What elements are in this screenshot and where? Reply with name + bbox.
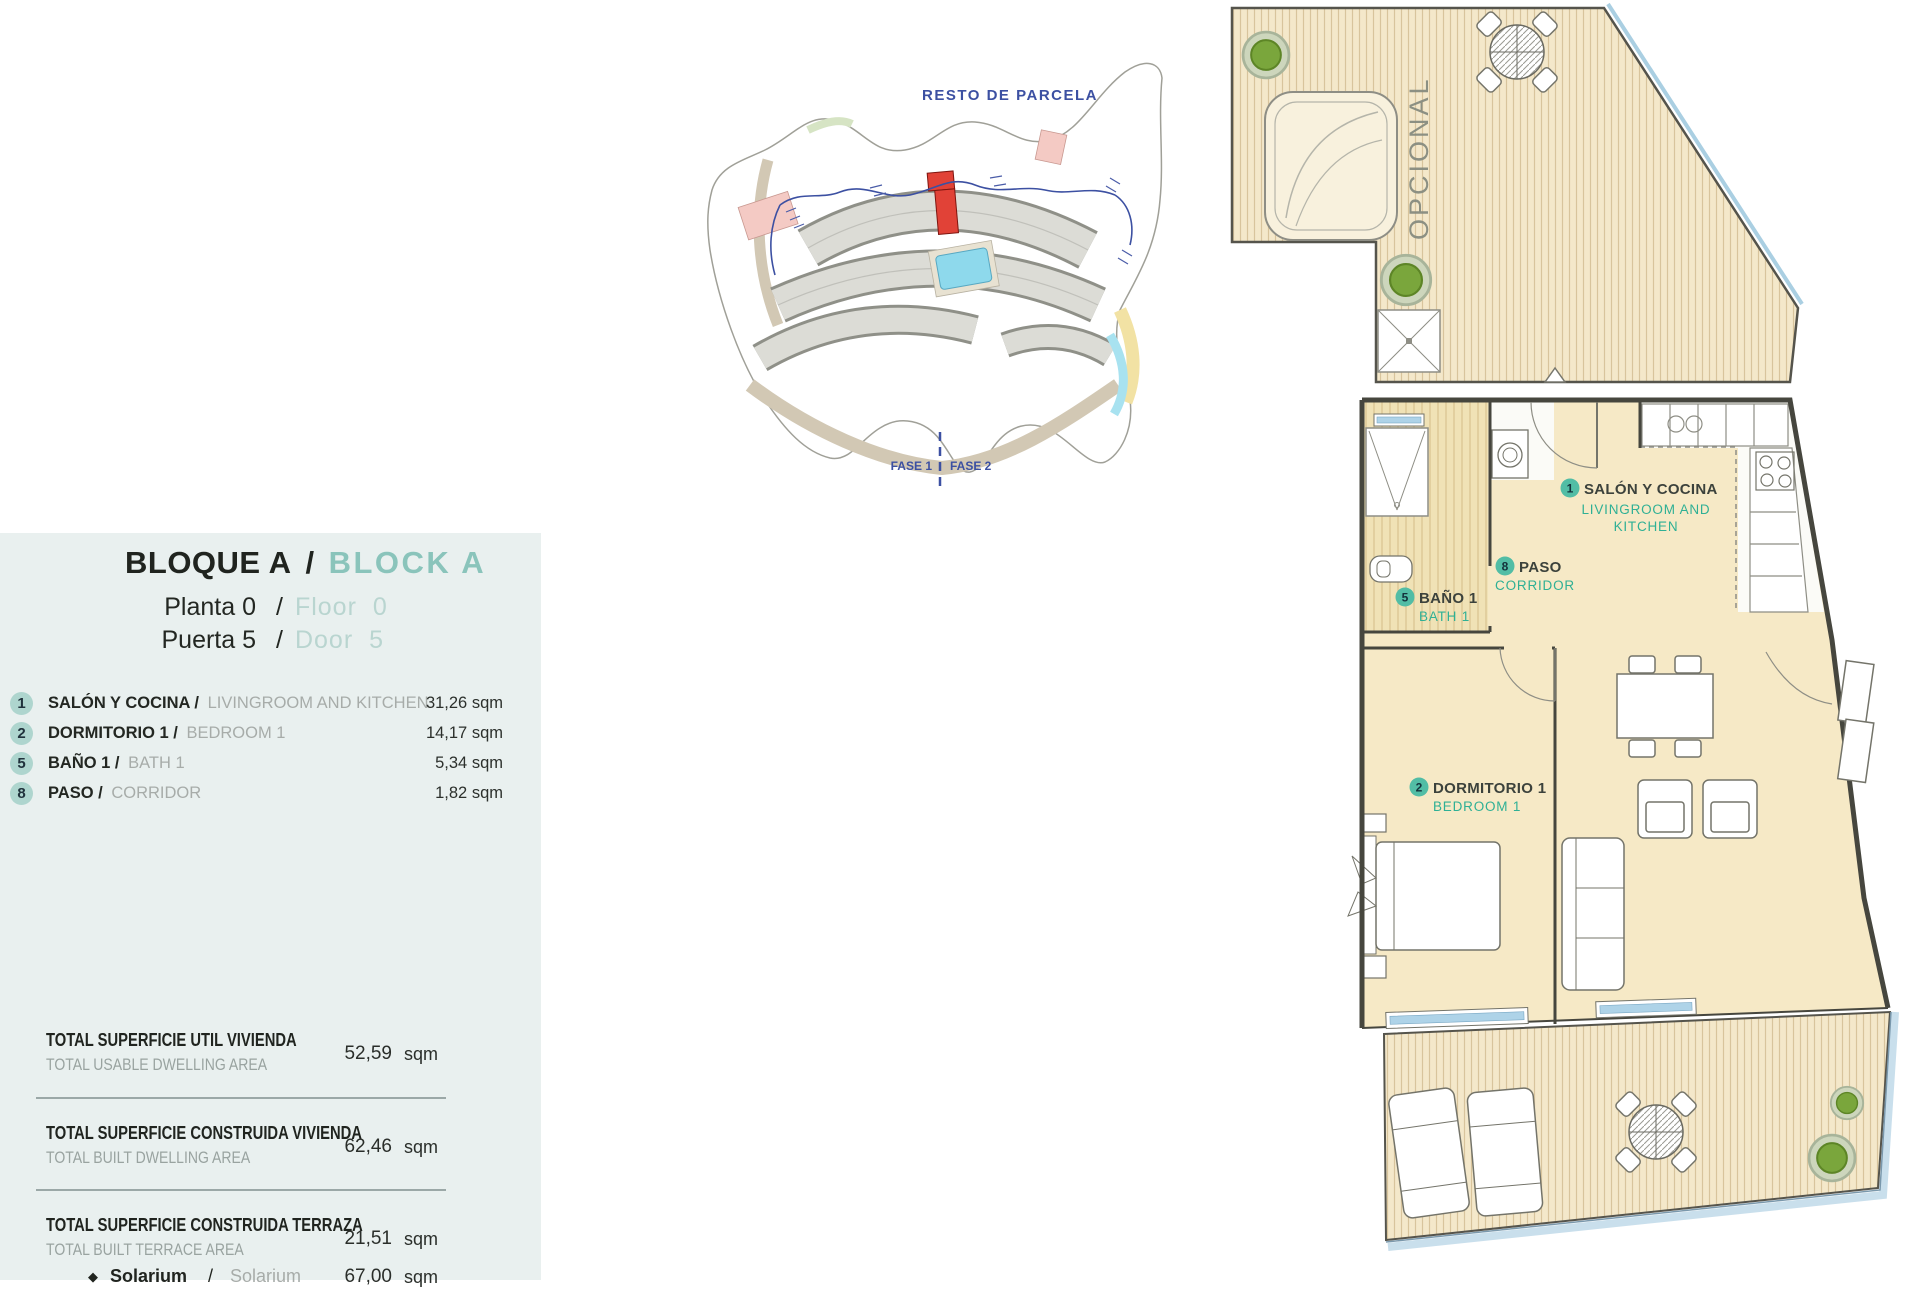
fase1-label: FASE 1 (891, 459, 933, 473)
room-name-es: PASO / (48, 784, 103, 802)
solarium-unit: sqm (404, 1267, 438, 1288)
room-name-en: BATH 1 (128, 754, 185, 772)
room-name-es: BAÑO 1 / (48, 754, 120, 772)
label-en: BEDROOM 1 (1433, 799, 1521, 814)
solarium-area: OPCIONAL (1232, 4, 1802, 382)
room-name: BAÑO 1 / BATH 1 (48, 754, 185, 773)
label-num: 2 (1416, 781, 1423, 795)
room-name: SALÓN Y COCINA / LIVINGROOM AND KITCHEN (48, 694, 429, 713)
room-name-es: SALÓN Y COCINA / (48, 694, 199, 712)
opcional-label: OPCIONAL (1404, 76, 1434, 240)
label-en: KITCHEN (1614, 519, 1679, 534)
label-num: 1 (1567, 482, 1574, 496)
label-es: PASO (1519, 559, 1562, 576)
room-area-unit: sqm (472, 784, 503, 802)
room-row-dormitorio: 2 DORMITORIO 1 / BEDROOM 1 14,17 sqm (0, 721, 541, 751)
diamond-icon: ◆ (88, 1269, 98, 1285)
bath-window (1374, 414, 1424, 426)
room-area-value: 31,26 (426, 694, 467, 712)
total-unit: sqm (404, 1044, 438, 1065)
label-es: SALÓN Y COCINA (1584, 480, 1718, 498)
solarium-value: 67,00 (330, 1266, 392, 1288)
room-area-unit: sqm (472, 694, 503, 712)
room-number-badge: 2 (10, 722, 33, 745)
sofa (1562, 838, 1624, 990)
room-number-badge: 5 (10, 752, 33, 775)
divider (36, 1189, 446, 1191)
fase2-label: FASE 2 (950, 459, 992, 473)
total-usable-area-row: TOTAL SUPERFICIE UTIL VIVIENDA TOTAL USA… (46, 1030, 516, 1075)
total-unit: sqm (404, 1229, 438, 1250)
block-title-separator: / (305, 545, 314, 580)
room-name-en: LIVINGROOM AND KITCHEN (208, 694, 429, 712)
livingroom-window (1596, 998, 1696, 1017)
skylight (1378, 310, 1440, 372)
jacuzzi (1265, 92, 1397, 240)
room-name: DORMITORIO 1 / BEDROOM 1 (48, 724, 286, 743)
floor-label-en-wrap: /Floor 0 (276, 593, 388, 622)
block-title-en: BLOCK A (329, 545, 487, 580)
room-row-paso: 8 PASO / CORRIDOR 1,82 sqm (0, 781, 541, 811)
room-name-es: DORMITORIO 1 / (48, 724, 178, 742)
room-area: 14,17 sqm (426, 724, 503, 743)
label-num: 8 (1502, 560, 1509, 574)
room-area: 5,34 sqm (435, 754, 503, 773)
floor-plan: OPCIONAL (1090, 0, 1920, 1280)
label-en: BATH 1 (1419, 609, 1470, 624)
room-number-badge: 8 (10, 782, 33, 805)
door-label-en: Door 5 (295, 626, 384, 654)
divider (36, 1097, 446, 1099)
door-separator: / (276, 626, 283, 654)
terrace (1384, 1012, 1895, 1247)
nightstand (1362, 814, 1386, 832)
total-built-area-row: TOTAL SUPERFICIE CONSTRUIDA VIVIENDA TOT… (46, 1123, 516, 1168)
room-name: PASO / CORRIDOR (48, 784, 201, 803)
room-area-value: 14,17 (426, 724, 467, 742)
label-en: CORRIDOR (1495, 578, 1575, 593)
sun-lounger (1467, 1087, 1544, 1216)
door-label-es: Puerta 5 (40, 626, 256, 655)
total-value: 62,46 (330, 1136, 392, 1158)
room-area: 31,26 sqm (426, 694, 503, 713)
washing-machine (1492, 430, 1528, 478)
floor-label-es: Planta 0 (40, 593, 256, 622)
room-area-unit: sqm (472, 724, 503, 742)
room-area-value: 1,82 (435, 784, 467, 802)
total-terrace-area-row: TOTAL SUPERFICIE CONSTRUIDA TERRAZA TOTA… (46, 1215, 516, 1260)
block-title-es: BLOQUE A (125, 545, 291, 580)
door-label-en-wrap: /Door 5 (276, 626, 384, 655)
solarium-en: Solarium (230, 1266, 301, 1287)
room-row-salon: 1 SALÓN Y COCINA / LIVINGROOM AND KITCHE… (0, 691, 541, 721)
label-es: BAÑO 1 (1419, 589, 1477, 607)
unit-info-panel: BLOQUE A/BLOCK A Planta 0 /Floor 0 Puert… (0, 533, 541, 1280)
room-area-unit: sqm (472, 754, 503, 772)
toilet (1370, 556, 1412, 582)
plant-pot (1381, 255, 1430, 304)
plant-pot (1809, 1135, 1855, 1181)
resto-de-parcela-label: RESTO DE PARCELA (922, 87, 1098, 104)
floor-separator: / (276, 593, 283, 621)
solarium-row: ◆ Solarium / Solarium 67,00 sqm (46, 1266, 516, 1292)
room-area-value: 5,34 (435, 754, 467, 772)
room-row-bano: 5 BAÑO 1 / BATH 1 5,34 sqm (0, 751, 541, 781)
nightstand (1362, 956, 1386, 978)
total-value: 52,59 (330, 1043, 392, 1065)
room-area: 1,82 sqm (435, 784, 503, 803)
room-name-en: CORRIDOR (111, 784, 201, 802)
solarium-separator: / (208, 1266, 213, 1287)
armchair (1638, 780, 1692, 838)
shower (1366, 428, 1428, 516)
bed (1348, 836, 1500, 954)
label-es: DORMITORIO 1 (1433, 780, 1546, 797)
plant-pot (1831, 1087, 1863, 1119)
label-num: 5 (1402, 591, 1409, 605)
plant-pot (1243, 32, 1289, 78)
floor-label-en: Floor 0 (295, 593, 388, 621)
block-title: BLOQUE A/BLOCK A (125, 545, 486, 581)
solarium-es: Solarium (110, 1266, 187, 1287)
total-unit: sqm (404, 1137, 438, 1158)
room-number-badge: 1 (10, 692, 33, 715)
label-en: LIVINGROOM AND (1582, 502, 1711, 517)
total-value: 21,51 (330, 1228, 392, 1250)
armchair (1703, 780, 1757, 838)
room-name-en: BEDROOM 1 (186, 724, 285, 742)
